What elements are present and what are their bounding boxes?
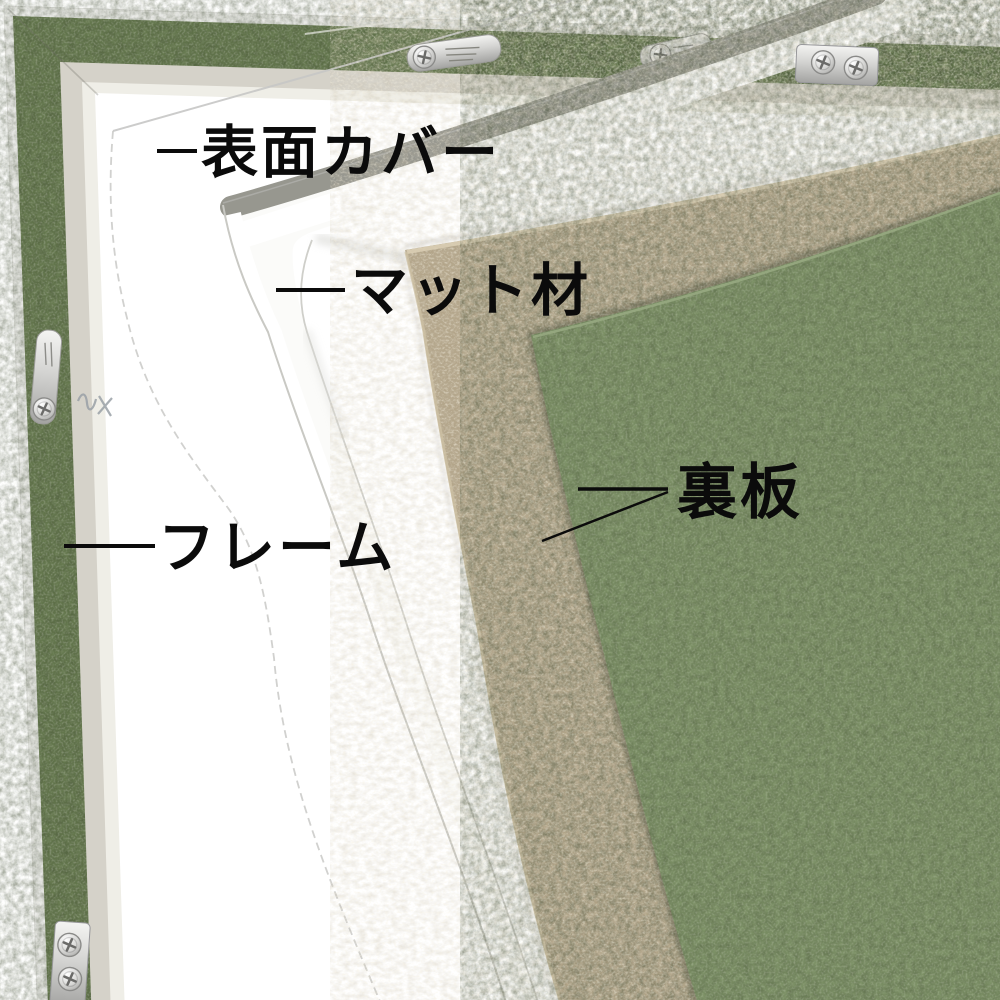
frame-parts-photo: 表面カバー マット材 フレーム 裏板 xyxy=(0,0,1000,1000)
corner-bracket-bottom-left xyxy=(50,921,91,1000)
label-mat-material: マット材 xyxy=(351,259,591,323)
label-frame: フレーム xyxy=(158,516,396,580)
screw xyxy=(844,56,868,80)
screw xyxy=(57,933,82,958)
photo-canvas: 表面カバー マット材 フレーム 裏板 xyxy=(0,0,1000,1000)
corner-bracket-top-right xyxy=(795,44,879,86)
label-back-board: 裏板 xyxy=(677,459,803,526)
screw xyxy=(811,50,835,74)
label-surface-cover: 表面カバー xyxy=(201,121,501,185)
callout-surface-cover: 表面カバー xyxy=(157,121,501,185)
screw xyxy=(58,967,83,992)
